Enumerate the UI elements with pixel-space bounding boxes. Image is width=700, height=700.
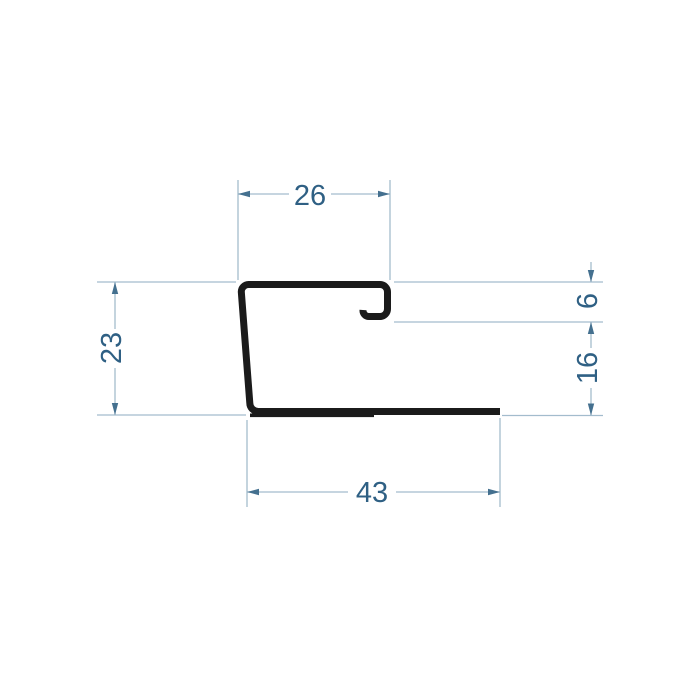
- drawing-canvas: 26 23 6 16: [0, 0, 700, 700]
- dim-right-arrow-up: [588, 322, 594, 334]
- dimension-left-height: 23: [96, 282, 246, 415]
- dim-left-arrow-bottom: [112, 403, 118, 415]
- dim-top-label: 26: [294, 180, 326, 212]
- profile-outline: [241, 285, 500, 412]
- dim-right-label: 16: [572, 352, 604, 384]
- dim-left-label: 23: [96, 332, 128, 364]
- dim-bottom-arrow-left: [247, 489, 259, 495]
- profile-shape: [241, 285, 500, 418]
- dim-top-arrow-right: [378, 191, 390, 197]
- profile-technical-drawing: 26 23 6 16: [0, 0, 700, 700]
- dimension-bottom-width: 43: [247, 418, 500, 509]
- dim-left-arrow-top: [112, 282, 118, 294]
- dim-lip-label: 6: [572, 293, 604, 309]
- dim-top-arrow-left: [238, 191, 250, 197]
- dimension-top-width: 26: [238, 180, 390, 280]
- dim-bottom-label: 43: [356, 477, 388, 509]
- dimension-right-side: 6 16: [394, 262, 604, 416]
- profile-bottom-thickening: [250, 414, 374, 418]
- dim-bottom-arrow-right: [488, 489, 500, 495]
- dim-right-arrow-down: [588, 404, 594, 416]
- dim-lip-arrow-down: [588, 270, 594, 282]
